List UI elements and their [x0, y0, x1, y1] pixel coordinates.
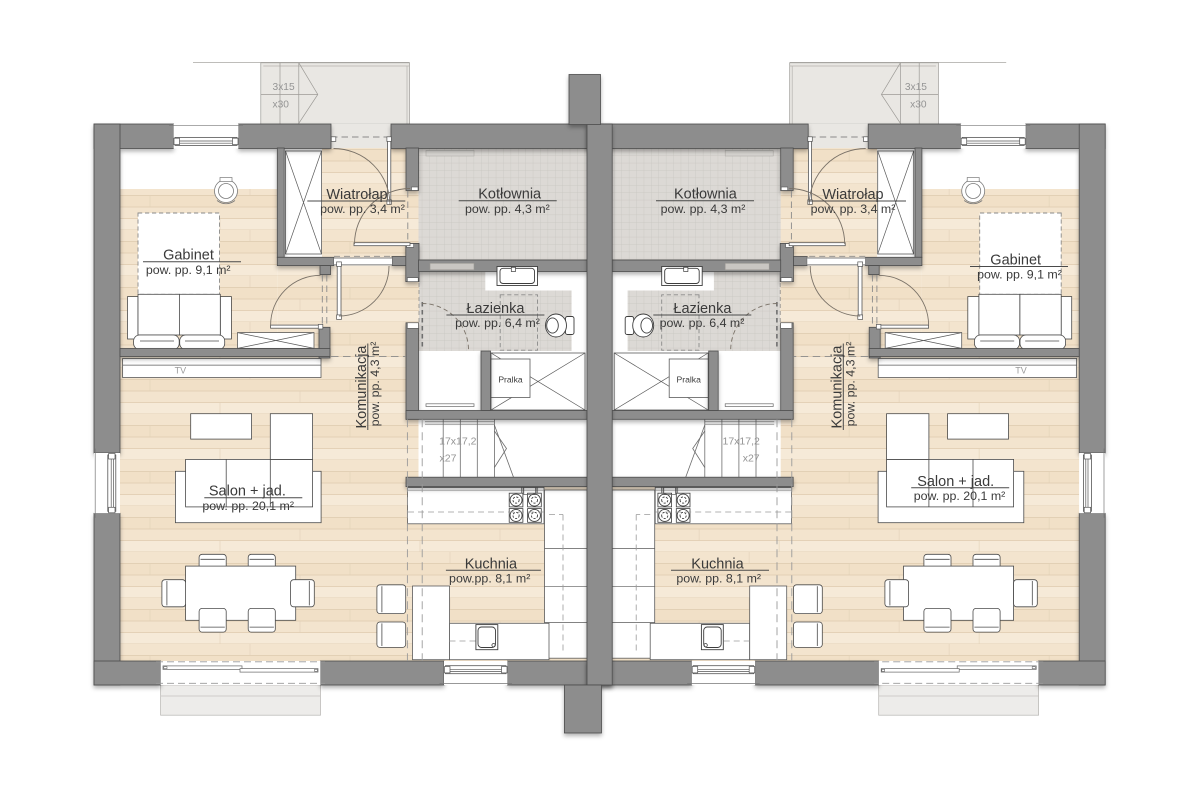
svg-text:x30: x30	[272, 100, 289, 111]
svg-text:x30: x30	[910, 100, 927, 111]
svg-text:pow. pp. 4,3 m²: pow. pp. 4,3 m²	[368, 342, 382, 427]
svg-text:pow. pp. 20,1 m²: pow. pp. 20,1 m²	[914, 489, 1006, 503]
svg-text:3x15: 3x15	[273, 82, 295, 93]
svg-text:TV: TV	[1015, 366, 1027, 376]
svg-text:x27: x27	[743, 453, 760, 465]
svg-text:3x15: 3x15	[905, 82, 927, 93]
svg-text:Pralka: Pralka	[677, 374, 702, 384]
svg-text:x27: x27	[440, 453, 457, 465]
svg-text:17x17,2: 17x17,2	[723, 435, 761, 447]
svg-text:Gabinet: Gabinet	[990, 252, 1041, 268]
svg-text:pow. pp. 8,1 m²: pow. pp. 8,1 m²	[676, 572, 761, 586]
svg-text:17x17,2: 17x17,2	[439, 435, 477, 447]
svg-text:TV: TV	[175, 366, 187, 376]
svg-text:pow. pp. 20,1 m²: pow. pp. 20,1 m²	[202, 499, 294, 513]
svg-text:pow. pp. 9,1 m²: pow. pp. 9,1 m²	[977, 268, 1062, 282]
svg-text:Pralka: Pralka	[498, 374, 523, 384]
svg-text:pow. pp. 4,3 m²: pow. pp. 4,3 m²	[844, 342, 858, 427]
svg-text:pow. pp. 6,4 m²: pow. pp. 6,4 m²	[455, 316, 540, 330]
svg-text:pow. pp. 6,4 m²: pow. pp. 6,4 m²	[660, 316, 745, 330]
svg-text:pow. pp. 4,3 m²: pow. pp. 4,3 m²	[465, 202, 550, 216]
svg-text:pow. pp. 9,1 m²: pow. pp. 9,1 m²	[146, 263, 231, 277]
svg-text:pow. pp. 3,4 m²: pow. pp. 3,4 m²	[320, 202, 405, 216]
svg-text:pow. pp. 3,4 m²: pow. pp. 3,4 m²	[811, 202, 896, 216]
svg-text:pow. pp. 4,3 m²: pow. pp. 4,3 m²	[661, 202, 746, 216]
svg-text:pow.pp. 8,1 m²: pow.pp. 8,1 m²	[449, 572, 530, 586]
